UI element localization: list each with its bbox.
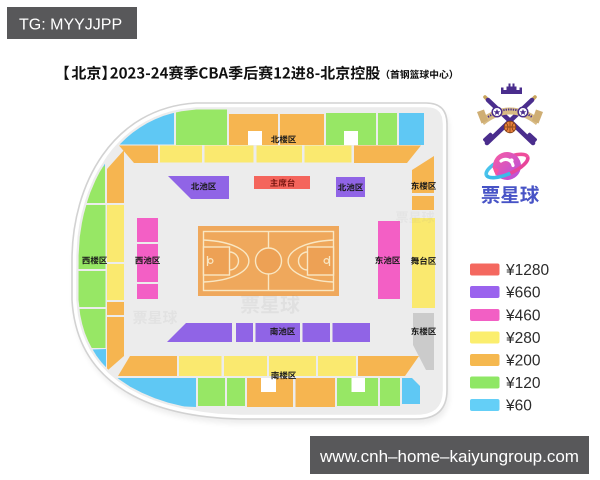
svg-text:¥1280: ¥1280 xyxy=(505,262,549,279)
svg-text:¥200: ¥200 xyxy=(505,353,541,370)
svg-text:¥660: ¥660 xyxy=(505,285,541,302)
svg-text:¥60: ¥60 xyxy=(505,398,532,415)
svg-text:¥280: ¥280 xyxy=(505,330,541,347)
svg-text:¥120: ¥120 xyxy=(505,375,541,392)
svg-text:www.cnh–home–kaiyungroup.com: www.cnh–home–kaiyungroup.com xyxy=(319,447,579,466)
svg-text:TG: MYYJJPP: TG: MYYJJPP xyxy=(19,17,122,34)
svg-text:¥460: ¥460 xyxy=(505,308,541,325)
